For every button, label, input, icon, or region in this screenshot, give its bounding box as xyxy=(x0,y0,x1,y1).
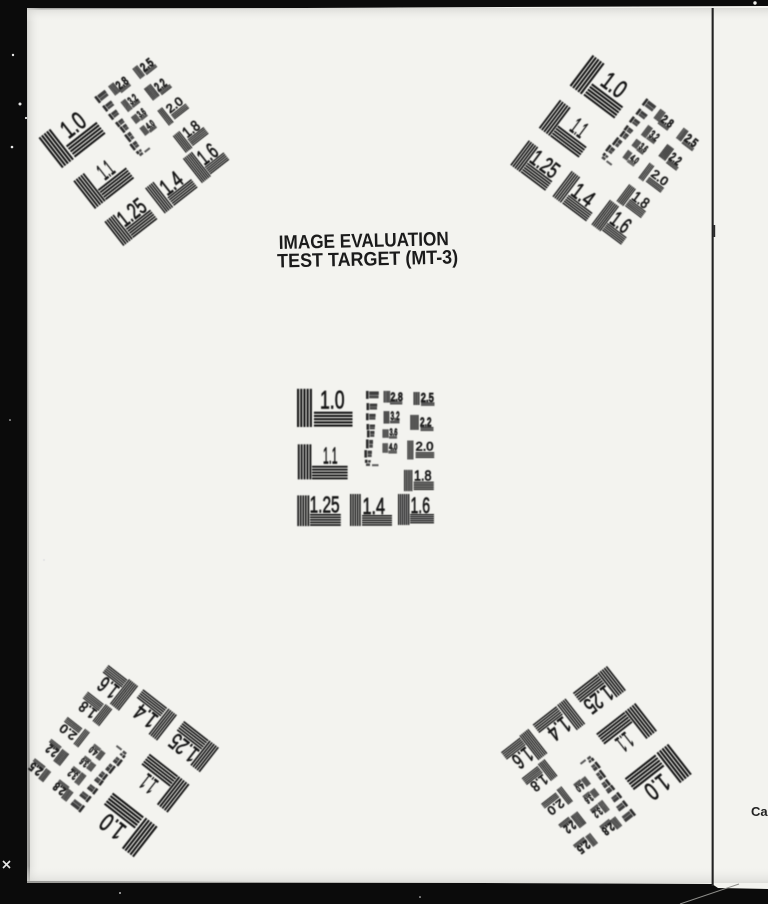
svg-text:TEST TARGET (MT-3): TEST TARGET (MT-3) xyxy=(277,246,458,272)
svg-text:Cau: Cau xyxy=(751,804,768,819)
